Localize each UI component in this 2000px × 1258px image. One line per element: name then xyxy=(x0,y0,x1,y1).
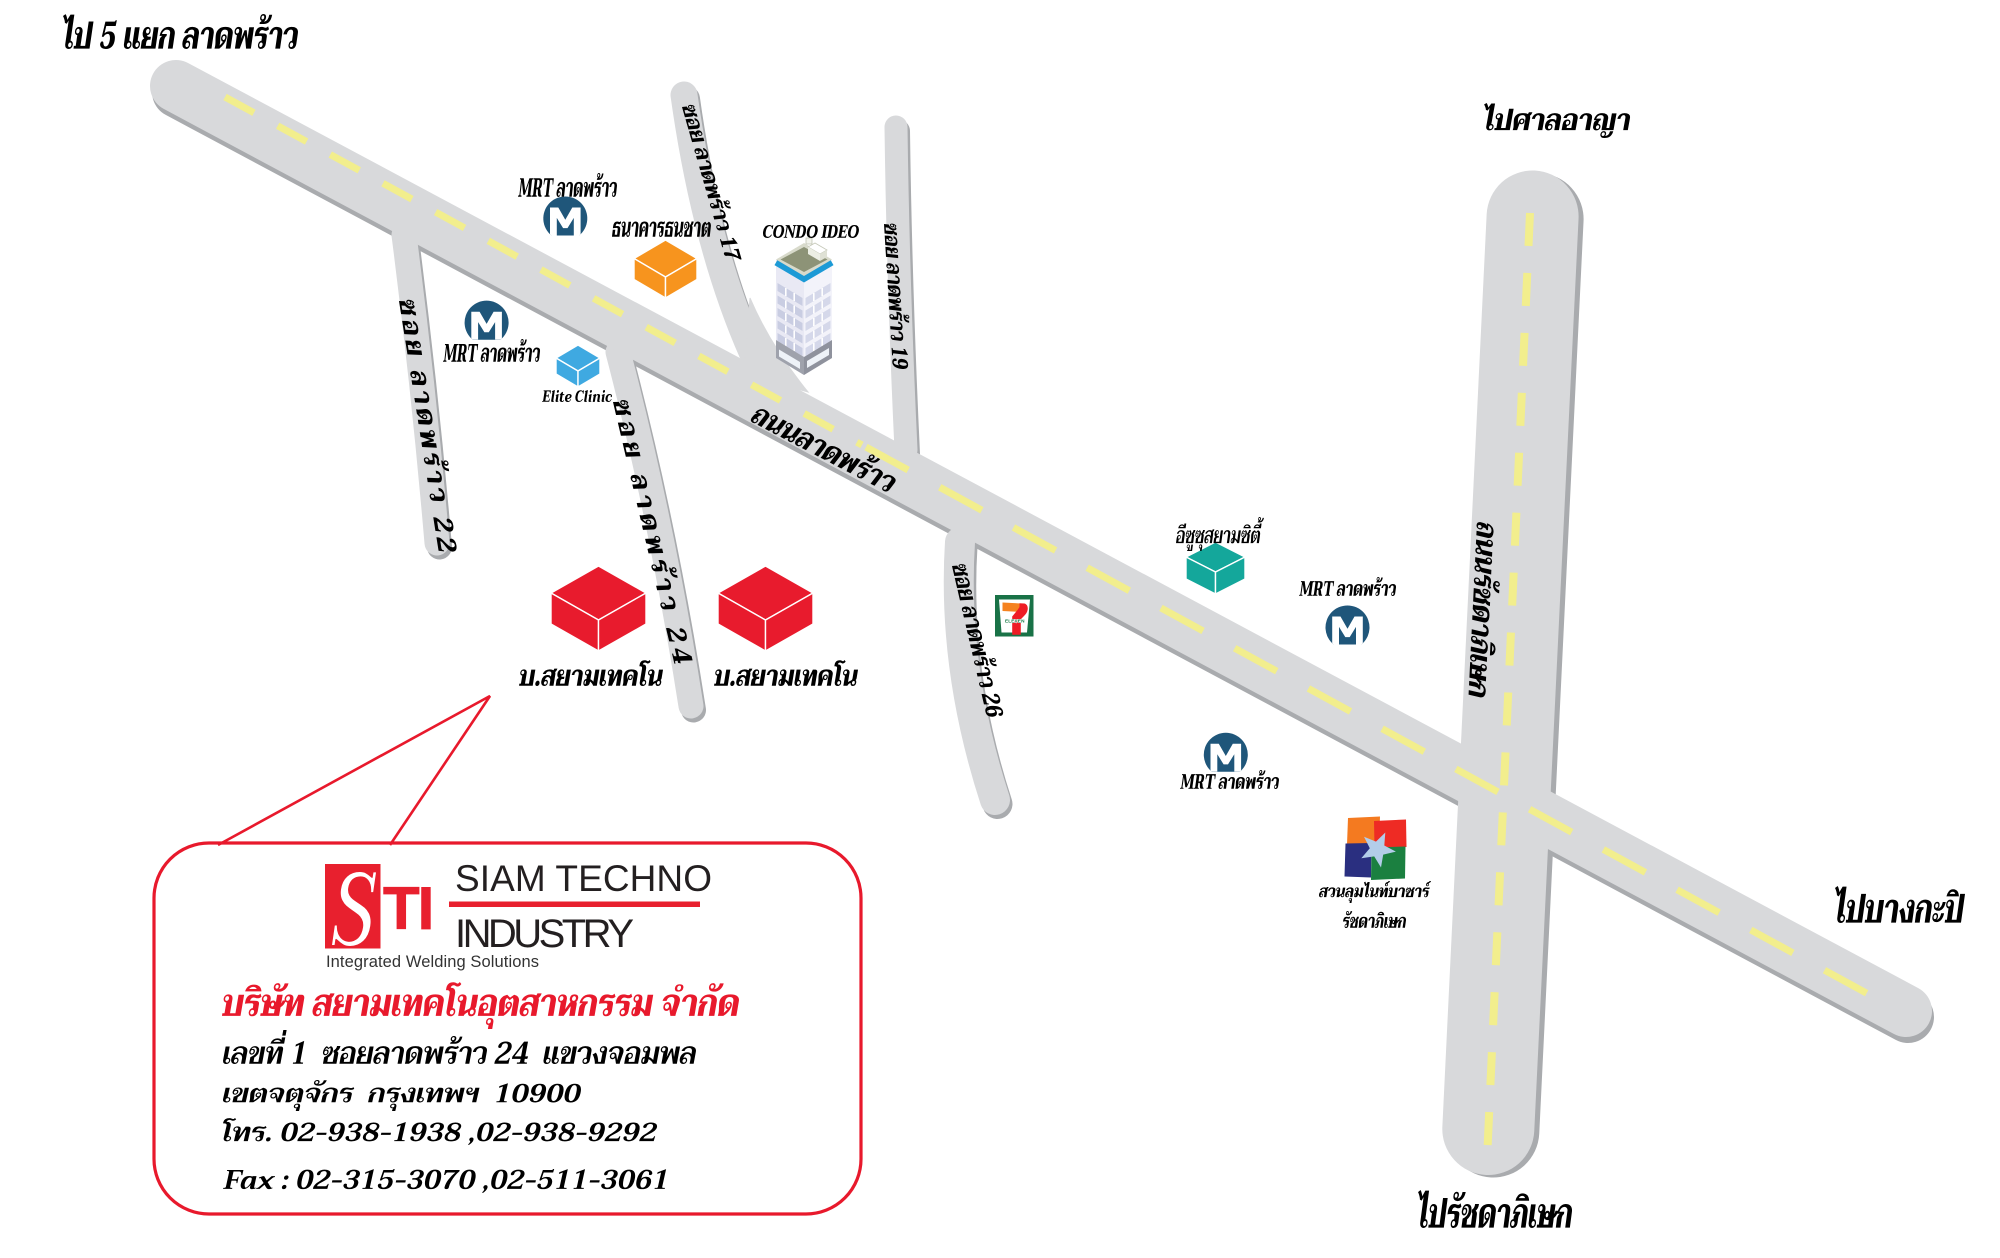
svg-text:INDUSTRY: INDUSTRY xyxy=(455,912,634,956)
svg-text:ELEVEN: ELEVEN xyxy=(1005,618,1025,623)
svg-text:TI: TI xyxy=(383,875,432,942)
svg-text:SIAM TECHNO: SIAM TECHNO xyxy=(455,858,712,899)
svg-text:Integrated Welding Solutions: Integrated Welding Solutions xyxy=(326,953,539,971)
